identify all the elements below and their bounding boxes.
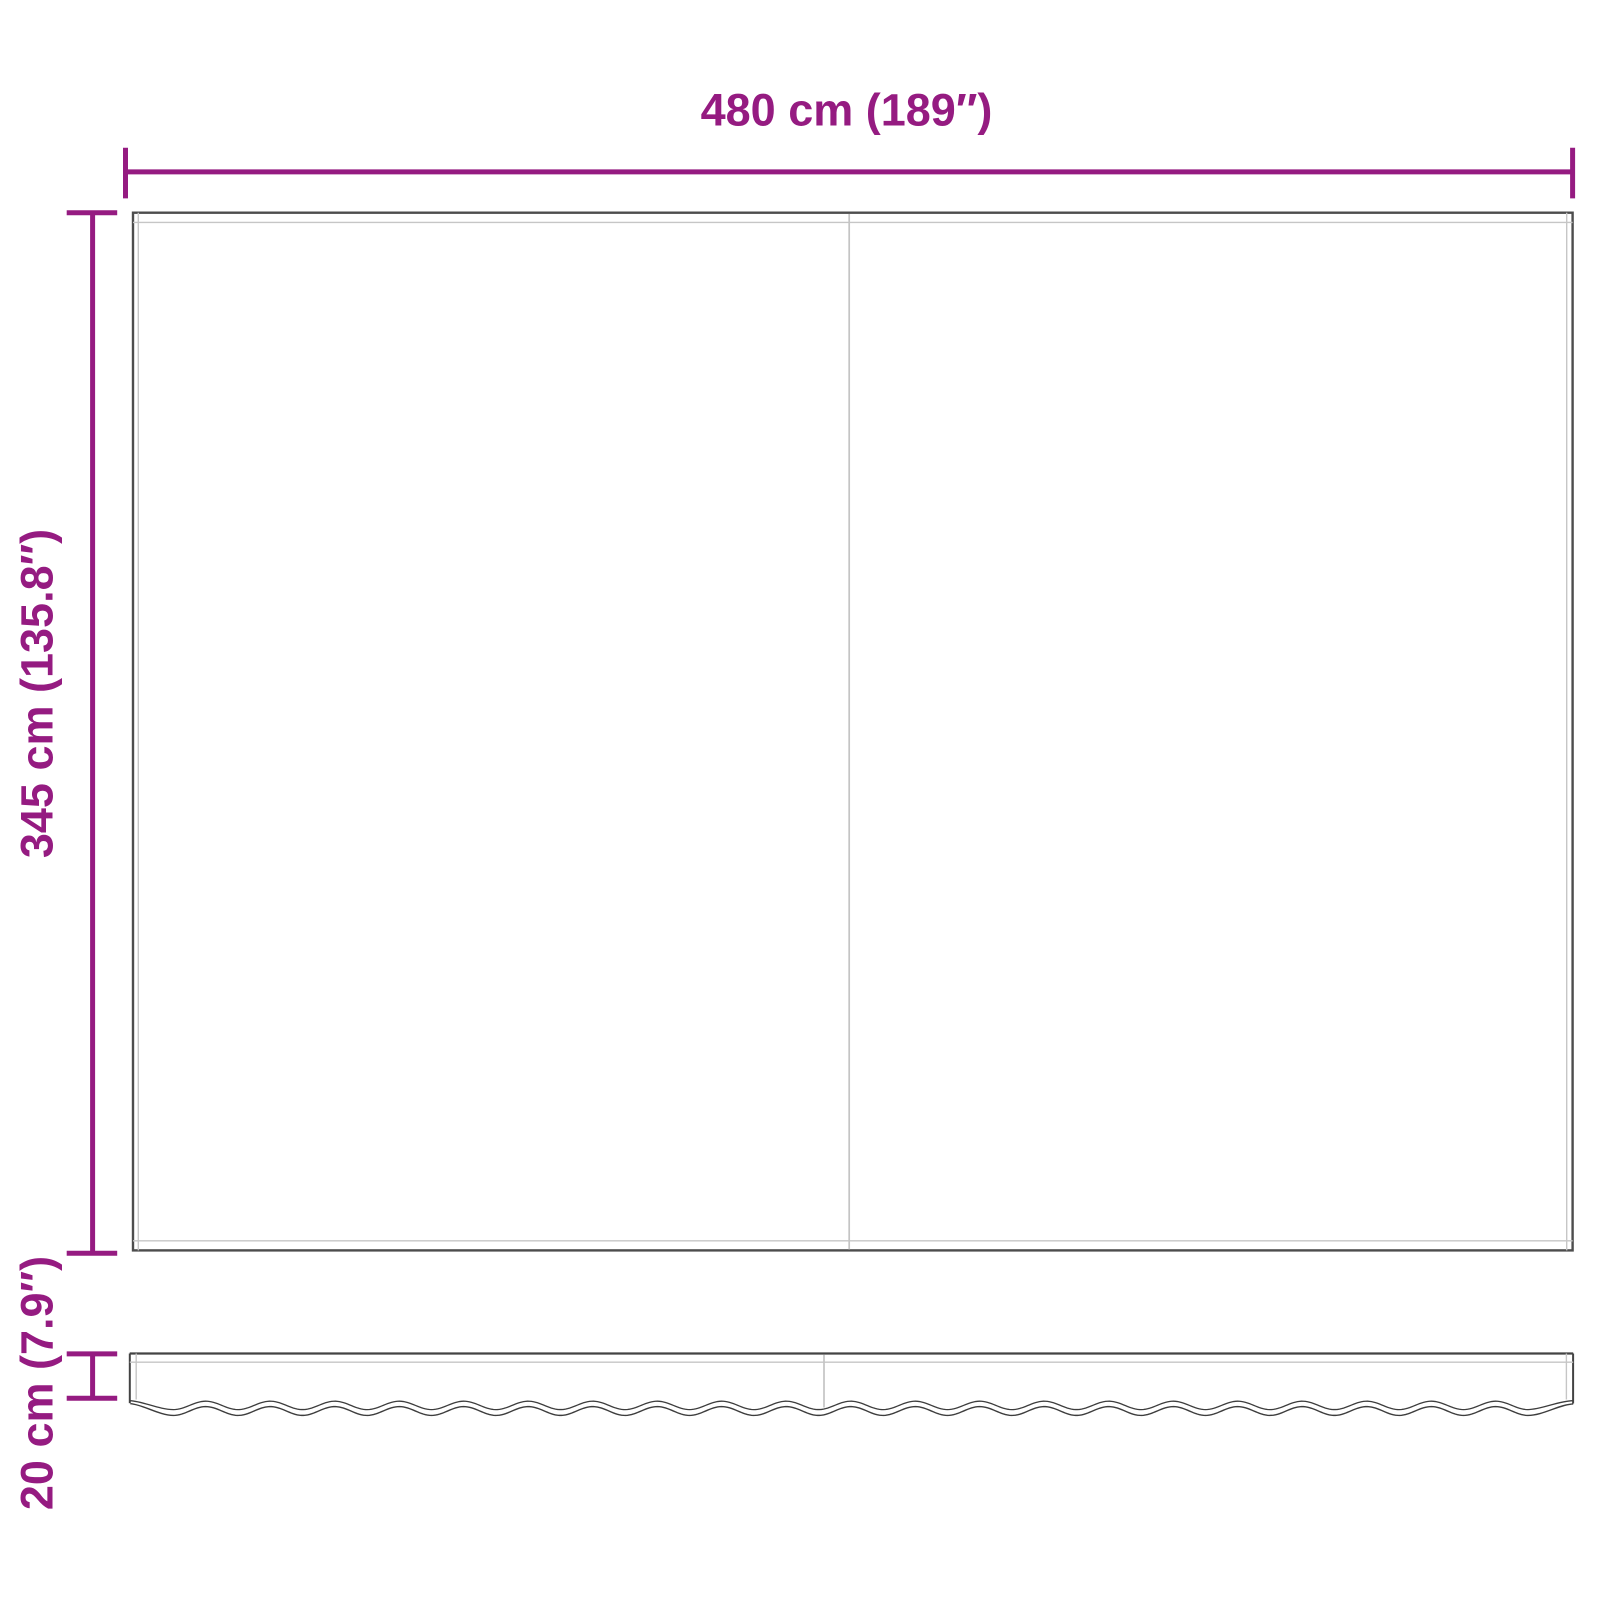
svg-text:20 cm (7.9″): 20 cm (7.9″) — [12, 1256, 63, 1510]
svg-text:480 cm (189″): 480 cm (189″) — [701, 85, 993, 136]
svg-text:345 cm (135.8″): 345 cm (135.8″) — [12, 529, 63, 858]
